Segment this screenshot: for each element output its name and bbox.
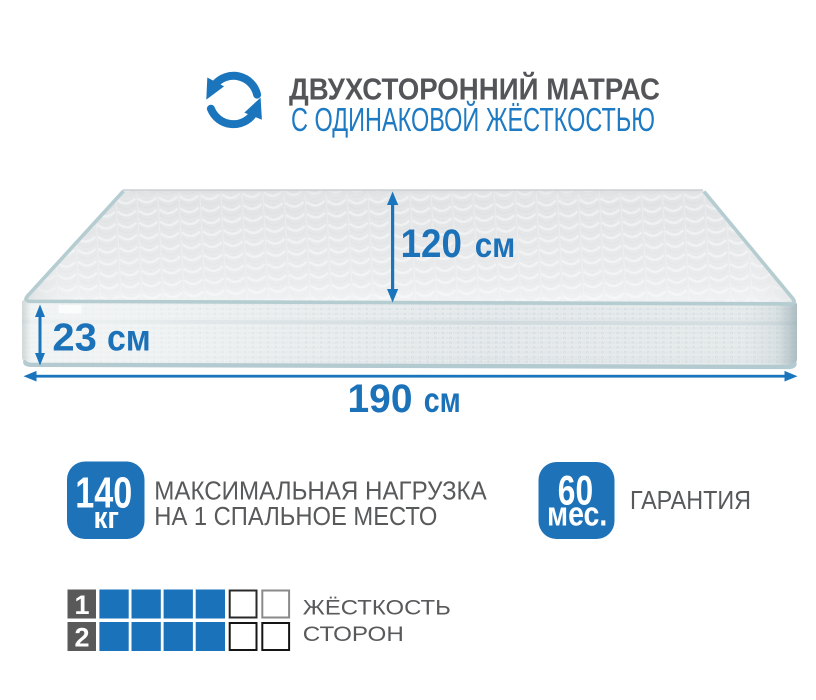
svg-text:см: см bbox=[424, 381, 461, 420]
svg-text:см: см bbox=[107, 318, 151, 359]
svg-text:190: 190 bbox=[348, 377, 413, 421]
svg-text:2: 2 bbox=[75, 623, 90, 653]
svg-text:НА 1 СПАЛЬНОЕ МЕСТО: НА 1 СПАЛЬНОЕ МЕСТО bbox=[154, 501, 437, 531]
svg-text:мес.: мес. bbox=[547, 496, 607, 534]
svg-text:С ОДИНАКОВОЙ ЖЁСТКОСТЬЮ: С ОДИНАКОВОЙ ЖЁСТКОСТЬЮ bbox=[291, 101, 655, 138]
svg-text:1: 1 bbox=[75, 590, 90, 620]
svg-text:ЖЁСТКОСТЬ: ЖЁСТКОСТЬ bbox=[303, 596, 451, 620]
svg-text:ГАРАНТИЯ: ГАРАНТИЯ bbox=[630, 485, 751, 515]
svg-text:кг: кг bbox=[94, 500, 120, 535]
svg-text:120: 120 bbox=[401, 222, 462, 266]
svg-text:23: 23 bbox=[52, 317, 97, 360]
svg-text:СТОРОН: СТОРОН bbox=[303, 622, 404, 646]
svg-text:см: см bbox=[475, 226, 516, 265]
